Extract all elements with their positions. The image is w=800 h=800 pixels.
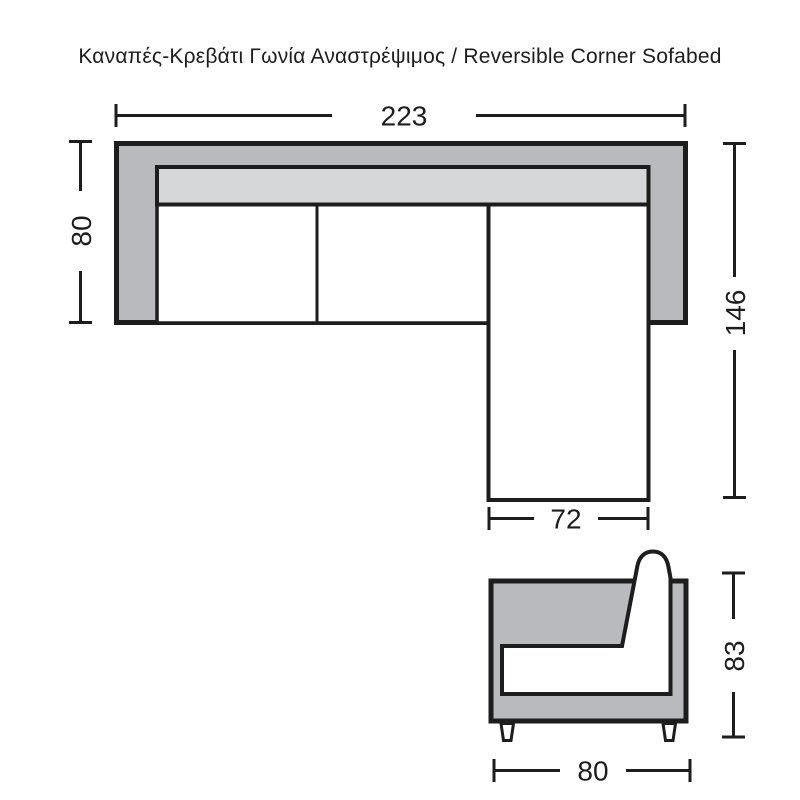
dim-side-depth-value: 80 — [577, 756, 608, 787]
dim-depth-left: 80 — [66, 142, 97, 323]
dim-depth-right-value: 146 — [720, 290, 751, 337]
dim-depth-left-value: 80 — [66, 215, 97, 246]
dim-chaise-width-value: 72 — [550, 504, 581, 535]
dim-side-height: 83 — [719, 573, 750, 737]
dim-depth-right: 146 — [720, 144, 751, 498]
dim-width-total-value: 223 — [381, 101, 428, 132]
dim-side-depth: 80 — [494, 756, 690, 787]
dim-chaise-width: 72 — [489, 504, 648, 535]
back-cushion — [157, 167, 649, 205]
side-leg-back — [663, 724, 676, 741]
dim-side-height-value: 83 — [719, 640, 750, 671]
dim-width-total: 223 — [116, 101, 685, 132]
diagram-page: Καναπές-Κρεβάτι Γωνία Αναστρέψιμος / Rev… — [0, 0, 800, 800]
sofa-diagram-svg: 223 80 146 72 — [0, 0, 800, 800]
chaise-section — [489, 205, 649, 501]
top-view — [117, 144, 686, 501]
side-view — [491, 552, 686, 741]
side-leg-front — [501, 724, 514, 741]
